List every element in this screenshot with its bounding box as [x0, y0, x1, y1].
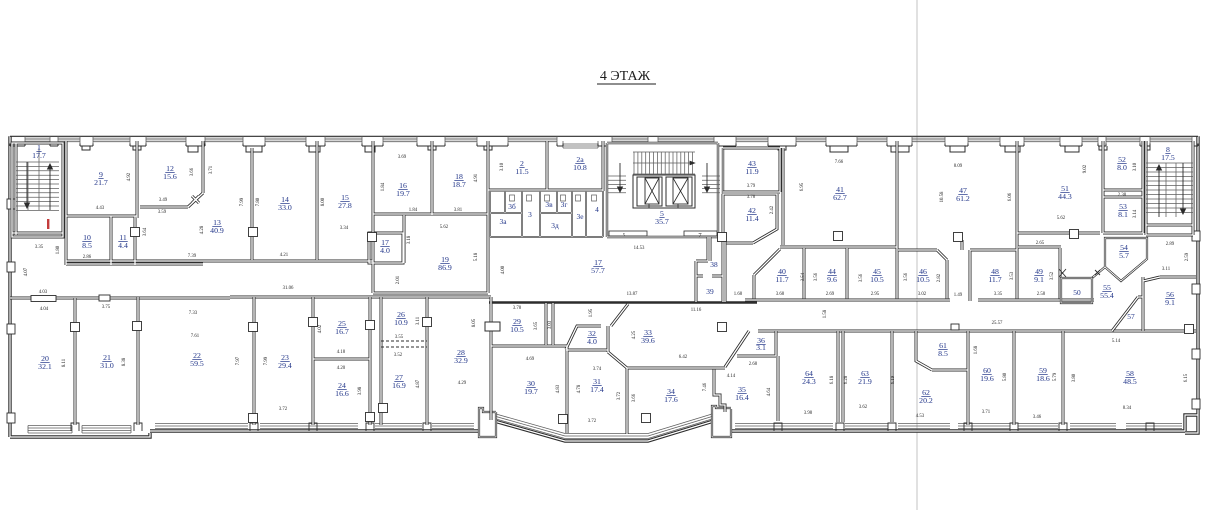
svg-text:9.1: 9.1 [1034, 275, 1044, 284]
svg-text:3.72: 3.72 [279, 407, 288, 412]
svg-text:50: 50 [1073, 288, 1081, 297]
svg-text:2.38: 2.38 [1118, 193, 1127, 198]
svg-text:11.7: 11.7 [988, 275, 1001, 284]
svg-text:3.10: 3.10 [500, 162, 505, 171]
svg-text:6.19: 6.19 [891, 375, 896, 384]
svg-text:8.09: 8.09 [954, 164, 963, 169]
svg-text:1.84: 1.84 [409, 208, 418, 213]
svg-text:14.53: 14.53 [634, 246, 645, 251]
svg-text:2.58: 2.58 [1037, 292, 1046, 297]
svg-text:4.78: 4.78 [577, 384, 582, 393]
svg-text:39: 39 [706, 287, 714, 296]
svg-text:7.99: 7.99 [240, 197, 245, 206]
svg-text:5.62: 5.62 [440, 225, 449, 230]
svg-text:3.49: 3.49 [159, 198, 168, 203]
svg-text:31.06: 31.06 [283, 286, 294, 291]
svg-text:3.71: 3.71 [982, 410, 991, 415]
svg-text:21.9: 21.9 [858, 377, 872, 386]
svg-text:4.00: 4.00 [501, 265, 506, 274]
svg-text:3.65: 3.65 [534, 321, 539, 330]
svg-text:3.46: 3.46 [1033, 415, 1042, 420]
svg-text:6.42: 6.42 [679, 355, 688, 360]
svg-text:3.74: 3.74 [593, 367, 602, 372]
svg-text:3.68: 3.68 [776, 292, 785, 297]
svg-text:2.42: 2.42 [770, 205, 775, 214]
svg-text:3.35: 3.35 [994, 292, 1003, 297]
svg-text:8.1: 8.1 [1118, 210, 1128, 219]
svg-text:38: 38 [710, 260, 718, 269]
svg-text:3.80: 3.80 [1072, 373, 1077, 382]
svg-text:2.95: 2.95 [871, 292, 880, 297]
svg-text:4.25: 4.25 [632, 330, 637, 339]
svg-text:6.95: 6.95 [800, 182, 805, 191]
svg-text:3.35: 3.35 [35, 245, 44, 250]
svg-text:2.59: 2.59 [1185, 252, 1190, 261]
svg-text:8.5: 8.5 [82, 241, 92, 250]
svg-text:5.7: 5.7 [1119, 251, 1129, 260]
svg-text:4.29: 4.29 [458, 381, 467, 386]
svg-text:3.1: 3.1 [756, 343, 766, 352]
svg-text:3.56: 3.56 [814, 272, 819, 281]
svg-text:7.97: 7.97 [236, 356, 241, 365]
svg-text:3.78: 3.78 [513, 306, 522, 311]
svg-text:4.43: 4.43 [96, 206, 105, 211]
svg-text:3.34: 3.34 [340, 226, 349, 231]
svg-text:20.2: 20.2 [919, 396, 933, 405]
svg-text:7.66: 7.66 [835, 160, 844, 165]
svg-text:16.9: 16.9 [392, 381, 406, 390]
svg-text:4.03: 4.03 [39, 290, 48, 295]
svg-text:15.6: 15.6 [163, 172, 177, 181]
svg-text:3.62: 3.62 [859, 405, 868, 410]
svg-text:4.92: 4.92 [127, 172, 132, 181]
svg-text:3.81: 3.81 [454, 208, 463, 213]
svg-text:3г: 3г [561, 200, 568, 209]
svg-text:3.52: 3.52 [394, 353, 403, 358]
svg-text:18.6: 18.6 [1036, 374, 1050, 383]
svg-text:10.5: 10.5 [916, 275, 930, 284]
svg-text:21.7: 21.7 [94, 178, 108, 187]
svg-text:8.5: 8.5 [938, 349, 948, 358]
svg-text:7.99: 7.99 [264, 356, 269, 365]
svg-text:11.7: 11.7 [775, 275, 788, 284]
svg-text:32.9: 32.9 [454, 356, 468, 365]
svg-text:17.5: 17.5 [1161, 153, 1175, 162]
svg-text:5.18: 5.18 [474, 252, 479, 261]
svg-text:3.72: 3.72 [617, 391, 622, 400]
svg-text:1.68: 1.68 [734, 292, 743, 297]
svg-text:5.62: 5.62 [1057, 216, 1066, 221]
svg-text:4.0: 4.0 [587, 337, 597, 346]
svg-text:10.5: 10.5 [870, 275, 884, 284]
svg-text:4.02: 4.02 [318, 324, 323, 333]
svg-text:4.28: 4.28 [200, 225, 205, 234]
svg-text:3.55: 3.55 [395, 335, 404, 340]
svg-text:4.18: 4.18 [337, 350, 346, 355]
svg-text:3.98: 3.98 [804, 411, 813, 416]
svg-text:2.89: 2.89 [1166, 242, 1175, 247]
svg-text:3в: 3в [545, 200, 553, 209]
svg-text:44.3: 44.3 [1058, 192, 1072, 201]
svg-text:17.6: 17.6 [664, 395, 678, 404]
svg-text:4.83: 4.83 [556, 384, 561, 393]
svg-text:3.69: 3.69 [398, 155, 407, 160]
svg-text:3.10: 3.10 [1133, 162, 1138, 171]
svg-text:17.7: 17.7 [32, 151, 46, 160]
svg-text:3.64: 3.64 [143, 227, 148, 236]
svg-text:57.7: 57.7 [591, 266, 605, 275]
svg-text:3.56: 3.56 [904, 272, 909, 281]
svg-text:6.06: 6.06 [1008, 192, 1013, 201]
svg-text:2.82: 2.82 [937, 273, 942, 282]
svg-text:3е: 3е [577, 212, 585, 221]
svg-text:19.6: 19.6 [980, 374, 994, 383]
svg-text:6.28: 6.28 [844, 375, 849, 384]
svg-text:3.66: 3.66 [632, 393, 637, 402]
svg-text:8.00: 8.00 [321, 197, 326, 206]
svg-text:10.5: 10.5 [510, 325, 524, 334]
svg-text:4.64: 4.64 [767, 387, 772, 396]
svg-text:10.58: 10.58 [940, 191, 945, 202]
svg-text:3.72: 3.72 [588, 419, 597, 424]
svg-text:4.53: 4.53 [916, 414, 925, 419]
svg-text:3.71: 3.71 [209, 165, 214, 174]
svg-text:19.7: 19.7 [524, 387, 538, 396]
svg-text:55.4: 55.4 [1100, 291, 1114, 300]
svg-text:10.9: 10.9 [394, 318, 408, 327]
svg-text:4.04: 4.04 [40, 307, 49, 312]
svg-text:2.86: 2.86 [83, 255, 92, 260]
svg-text:86.9: 86.9 [438, 263, 452, 272]
svg-text:7.39: 7.39 [188, 254, 197, 259]
svg-text:16.7: 16.7 [335, 327, 349, 336]
svg-text:2.69: 2.69 [826, 292, 835, 297]
svg-text:39.6: 39.6 [641, 336, 655, 345]
svg-text:29.4: 29.4 [278, 361, 292, 370]
svg-text:7.33: 7.33 [189, 311, 198, 316]
svg-text:3.03: 3.03 [548, 320, 553, 329]
svg-text:8.11: 8.11 [62, 358, 67, 367]
svg-text:2.68: 2.68 [749, 362, 758, 367]
svg-text:24.3: 24.3 [802, 377, 816, 386]
svg-text:35.7: 35.7 [655, 217, 669, 226]
svg-text:4 ЭТАЖ: 4 ЭТАЖ [600, 69, 651, 84]
svg-text:3б: 3б [508, 202, 516, 211]
svg-text:16.6: 16.6 [335, 389, 349, 398]
svg-text:31.0: 31.0 [100, 361, 114, 370]
svg-text:33.0: 33.0 [278, 203, 292, 212]
svg-text:8.38: 8.38 [122, 357, 127, 366]
svg-text:10.8: 10.8 [573, 163, 587, 172]
svg-text:1.95: 1.95 [589, 308, 594, 317]
svg-text:3.11: 3.11 [1162, 267, 1171, 272]
svg-text:18.7: 18.7 [452, 180, 466, 189]
svg-text:11.4: 11.4 [745, 214, 758, 223]
svg-text:5.80: 5.80 [1003, 372, 1008, 381]
svg-text:4.4: 4.4 [118, 241, 128, 250]
svg-text:19.7: 19.7 [396, 189, 410, 198]
svg-text:1.80: 1.80 [56, 245, 61, 254]
svg-text:4.0: 4.0 [380, 246, 390, 255]
svg-text:40.9: 40.9 [210, 226, 224, 235]
svg-text:32.1: 32.1 [38, 362, 52, 371]
svg-text:3.79: 3.79 [747, 184, 756, 189]
svg-text:2.01: 2.01 [396, 275, 401, 284]
svg-text:3.59: 3.59 [158, 210, 167, 215]
svg-text:3.78: 3.78 [747, 195, 756, 200]
svg-text:9.1: 9.1 [1165, 298, 1175, 307]
svg-text:4.21: 4.21 [280, 253, 289, 258]
svg-text:11.9: 11.9 [745, 167, 758, 176]
svg-text:3.66: 3.66 [190, 167, 195, 176]
svg-text:4.14: 4.14 [727, 374, 736, 379]
svg-text:62.7: 62.7 [833, 193, 847, 202]
svg-text:4.87: 4.87 [416, 379, 421, 388]
svg-text:11.5: 11.5 [515, 167, 528, 176]
svg-text:3а: 3а [500, 217, 508, 226]
svg-text:4.20: 4.20 [337, 366, 346, 371]
svg-text:3.52: 3.52 [1050, 271, 1055, 280]
svg-text:4: 4 [595, 205, 599, 214]
svg-text:3д: 3д [551, 221, 559, 230]
svg-text:3.53: 3.53 [1010, 271, 1015, 280]
svg-text:7.46: 7.46 [703, 382, 708, 391]
svg-text:57: 57 [1127, 312, 1135, 321]
svg-text:6.18: 6.18 [830, 375, 835, 384]
svg-text:3: 3 [528, 210, 532, 219]
svg-text:3.98: 3.98 [358, 386, 363, 395]
svg-text:17.4: 17.4 [590, 385, 604, 394]
svg-text:3.11: 3.11 [416, 316, 421, 325]
svg-text:5.14: 5.14 [1112, 339, 1121, 344]
svg-text:4.07: 4.07 [24, 267, 29, 276]
svg-text:3.75: 3.75 [102, 305, 111, 310]
svg-text:1.49: 1.49 [954, 293, 963, 298]
svg-text:1.68: 1.68 [974, 345, 979, 354]
svg-text:16.4: 16.4 [735, 393, 749, 402]
svg-text:3.56: 3.56 [859, 273, 864, 282]
svg-text:8.0: 8.0 [1117, 163, 1127, 172]
svg-text:11.16: 11.16 [691, 308, 702, 313]
svg-text:7.80: 7.80 [256, 197, 261, 206]
svg-text:3.02: 3.02 [918, 292, 927, 297]
svg-text:59.5: 59.5 [190, 359, 204, 368]
svg-text:3.14: 3.14 [1133, 209, 1138, 218]
svg-text:1.58: 1.58 [823, 309, 828, 318]
svg-text:1.84: 1.84 [381, 182, 386, 191]
svg-text:5.79: 5.79 [1053, 372, 1058, 381]
svg-text:7.61: 7.61 [191, 334, 200, 339]
svg-text:8.05: 8.05 [472, 318, 477, 327]
svg-text:8.34: 8.34 [1123, 406, 1132, 411]
svg-text:2.65: 2.65 [1036, 241, 1045, 246]
svg-text:9.6: 9.6 [827, 275, 837, 284]
svg-text:13.87: 13.87 [627, 292, 638, 297]
svg-text:3.54: 3.54 [801, 272, 806, 281]
svg-text:61.2: 61.2 [956, 194, 970, 203]
svg-text:3.18: 3.18 [407, 235, 412, 244]
svg-text:27.8: 27.8 [338, 201, 352, 210]
svg-text:6.15: 6.15 [1184, 373, 1189, 382]
svg-text:25.57: 25.57 [992, 321, 1003, 326]
svg-text:4.91: 4.91 [474, 173, 479, 182]
svg-text:4.69: 4.69 [526, 357, 535, 362]
svg-text:48.5: 48.5 [1123, 377, 1137, 386]
svg-text:9.02: 9.02 [1083, 164, 1088, 173]
